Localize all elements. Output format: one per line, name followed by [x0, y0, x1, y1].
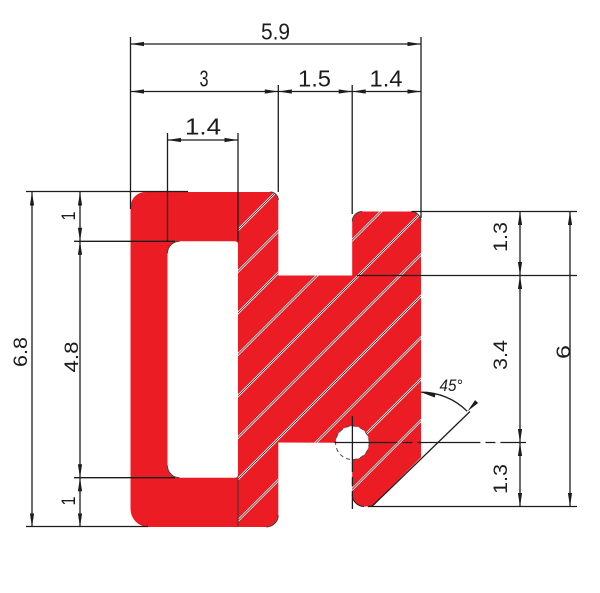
svg-text:5.9: 5.9 — [261, 19, 290, 45]
svg-text:1.4: 1.4 — [185, 114, 221, 140]
svg-text:1.3: 1.3 — [491, 464, 512, 494]
svg-text:3: 3 — [200, 66, 209, 92]
svg-text:45°: 45° — [440, 376, 463, 395]
svg-text:1.3: 1.3 — [491, 222, 512, 252]
svg-text:4.8: 4.8 — [62, 342, 83, 373]
svg-text:6: 6 — [554, 345, 575, 359]
svg-text:1.5: 1.5 — [298, 66, 331, 92]
svg-text:1: 1 — [59, 212, 80, 221]
svg-text:1.4: 1.4 — [370, 66, 403, 92]
svg-text:3.4: 3.4 — [491, 340, 512, 370]
svg-text:1: 1 — [59, 497, 80, 506]
svg-text:6.8: 6.8 — [11, 337, 32, 367]
